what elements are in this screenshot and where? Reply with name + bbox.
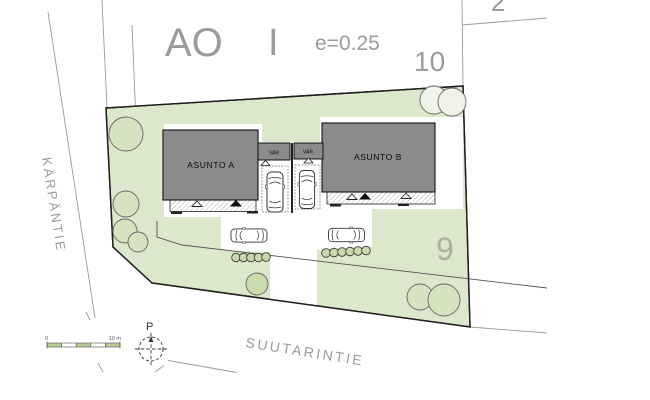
- building-a-label: ASUNTO A: [187, 160, 235, 170]
- step-tick-a1: [171, 212, 182, 215]
- tree-icon-yard: [246, 273, 268, 295]
- road-tick-1: [155, 366, 164, 373]
- storage-var-a-label: VAR: [269, 151, 279, 157]
- efficiency-label: e=0.25: [315, 32, 380, 55]
- tree-icon-left-4: [128, 232, 148, 252]
- bush-icon: [354, 247, 363, 256]
- tree-icon-topright-2: [438, 88, 466, 116]
- bush-icon: [346, 247, 355, 256]
- step-tick-b2: [398, 204, 409, 207]
- storeys-label: I: [268, 22, 279, 64]
- street-label-suutarintie: SUUTARINTIE: [245, 334, 366, 369]
- north-arrow: P: [135, 321, 167, 365]
- road-tick-3: [86, 312, 90, 320]
- car-icon-carport-a: [265, 172, 284, 212]
- bush-icon: [322, 249, 331, 258]
- car-icon-carport-b: [298, 171, 316, 209]
- northeast-plot-line: [462, 18, 547, 25]
- street-label-karpantie: KÄRPÄNTIE: [39, 156, 69, 253]
- tree-icon-left-2: [113, 191, 139, 217]
- bush-icon: [338, 248, 347, 257]
- bush-icon: [330, 248, 339, 257]
- car-icon-parking-2: [329, 227, 365, 243]
- step-tick-a2: [247, 211, 258, 214]
- north-arrow-label: P: [146, 321, 153, 333]
- north-plot-line: [462, 0, 463, 86]
- lot-number-2: 2: [491, 0, 505, 17]
- karpantie-east-edge: [102, 0, 107, 108]
- building-asunto-b: ASUNTO B: [322, 123, 435, 207]
- lot-number-10: 10: [414, 46, 445, 77]
- suutarintie-edge-east: [470, 327, 547, 333]
- building-b-label: ASUNTO B: [354, 152, 402, 162]
- scale-bar-zero-label: 0: [45, 336, 48, 342]
- car-icon-parking-1: [231, 228, 267, 244]
- zoning-code-label: AO: [165, 21, 223, 65]
- site-plan-page: ASUNTO A ASUNTO B VAR VAR: [0, 0, 650, 400]
- lot-number-9: 9: [436, 231, 454, 267]
- tree-icon-left-1: [109, 117, 143, 151]
- site-plan-drawing: ASUNTO A ASUNTO B VAR VAR: [0, 0, 650, 400]
- terrace-a: [170, 200, 256, 212]
- building-asunto-a: ASUNTO A: [163, 130, 258, 214]
- tree-icon-bottomright-2: [428, 284, 460, 316]
- bush-icon: [262, 253, 271, 262]
- bush-icon: [362, 246, 371, 255]
- suutarintie-south-edge: [168, 361, 237, 373]
- road-tick-2: [98, 363, 103, 372]
- scale-bar-end-label: 10 m: [109, 336, 122, 342]
- step-tick-b1: [330, 204, 341, 207]
- scale-bar: 0 10 m: [45, 336, 121, 349]
- terrace-b: [327, 192, 435, 204]
- storage-var-b-label: VAR: [303, 150, 313, 156]
